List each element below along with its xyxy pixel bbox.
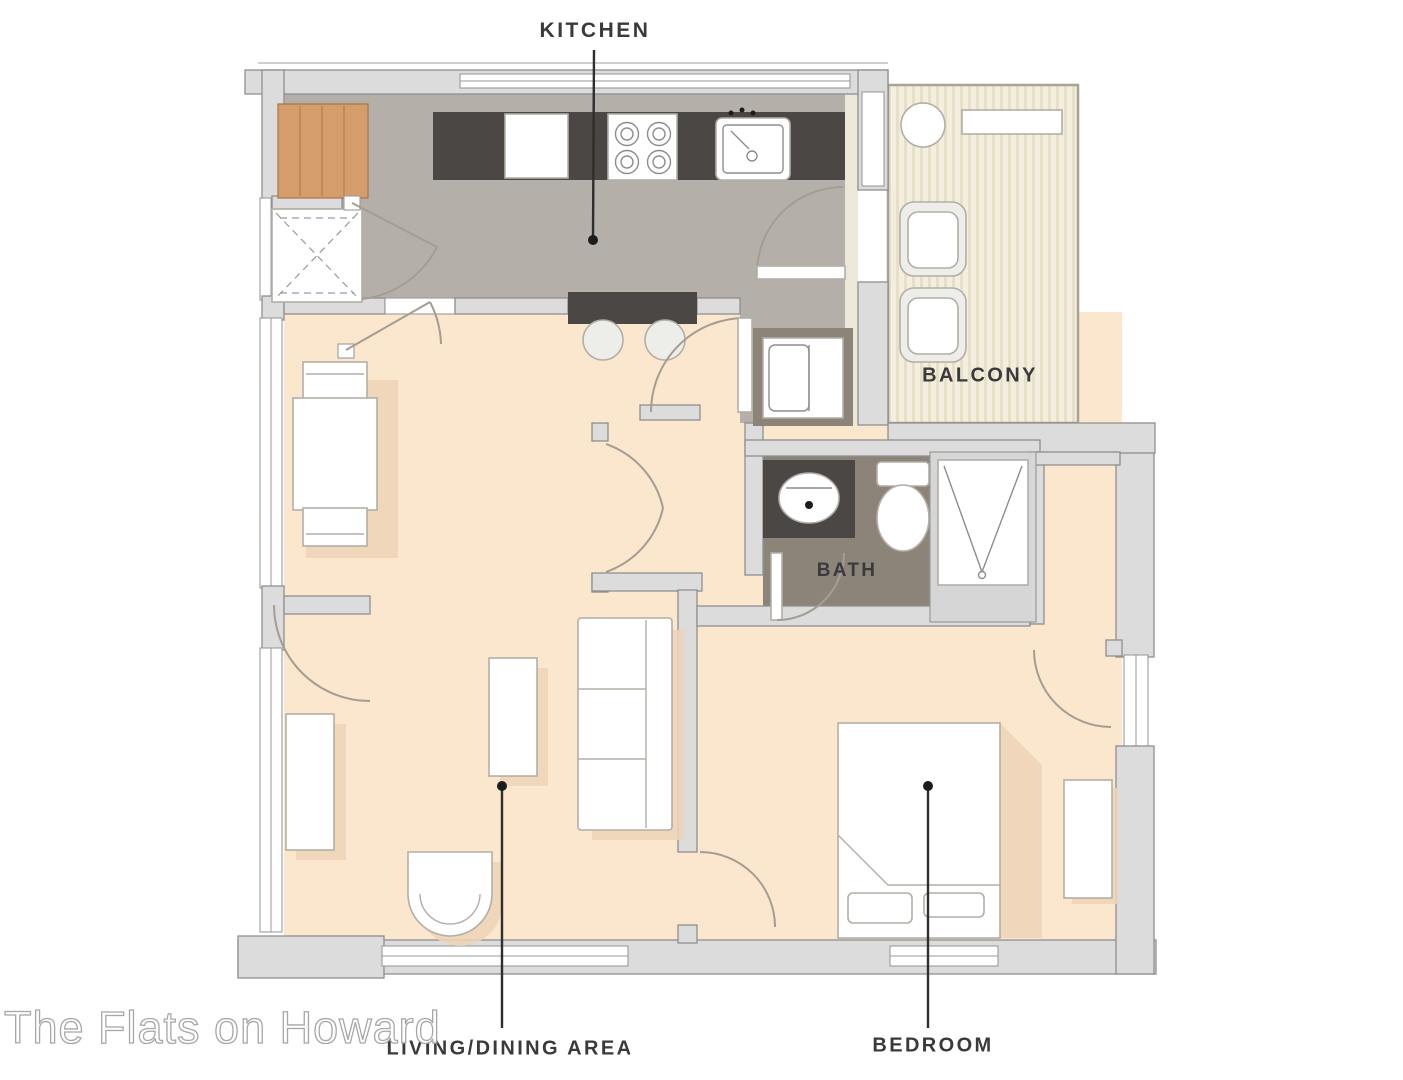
bar-stool-left	[583, 320, 623, 360]
wall-balcony-side-2	[858, 282, 888, 425]
pillow-right	[924, 893, 984, 917]
dresser	[1064, 780, 1118, 904]
floor-plan-page: KITCHEN BALCONY BATH LIVING/DINING AREA …	[0, 0, 1403, 1080]
balcony-planter	[962, 110, 1062, 134]
bar-stool-right	[645, 320, 685, 360]
kitchen-pass-through	[385, 298, 455, 314]
closet-door-jamb	[1106, 640, 1122, 656]
hall-wall-horizontal	[592, 573, 702, 591]
balcony-label: BALCONY	[922, 365, 1038, 388]
kitchen-leader	[593, 50, 594, 240]
closet-north-wall	[1035, 452, 1120, 465]
kitchen-wall-c	[697, 298, 740, 314]
wall-right-1	[1116, 425, 1154, 657]
bedroom-label: BEDROOM	[872, 1035, 993, 1058]
pillow-left	[848, 893, 912, 923]
stove	[608, 114, 677, 180]
dining-set	[293, 362, 398, 558]
nook-wall	[640, 405, 700, 420]
washer-dryer	[272, 209, 362, 302]
kitchen-wall-b	[455, 298, 568, 314]
sofa	[578, 618, 684, 840]
kitchen-east-window	[862, 92, 884, 186]
vanity-sink	[763, 460, 855, 538]
shower	[930, 452, 1036, 622]
living-wall-stub	[284, 596, 370, 614]
bath-label: BATH	[817, 560, 877, 582]
wall-right-2	[1116, 746, 1154, 974]
coat-closet	[278, 104, 368, 198]
kitchen-label: KITCHEN	[540, 19, 651, 43]
dishwasher	[505, 114, 568, 178]
appliance-closet	[753, 328, 853, 426]
console-table	[286, 714, 346, 860]
kitchen-island	[568, 292, 697, 324]
kitchen-sink	[716, 108, 790, 181]
watermark: The Flats on Howard	[4, 1002, 441, 1054]
balcony-table	[901, 103, 945, 147]
balcony-chair-top	[900, 202, 966, 276]
floor-plan-canvas	[0, 0, 1403, 1080]
living-bedroom-wall-stub	[678, 925, 697, 943]
double-door-stub-top	[592, 423, 608, 441]
wall-bottom-left-block	[238, 936, 384, 978]
coffee-table	[489, 658, 548, 786]
toilet	[877, 462, 929, 551]
bed	[838, 723, 1042, 938]
balcony-chair-bottom	[900, 288, 966, 362]
